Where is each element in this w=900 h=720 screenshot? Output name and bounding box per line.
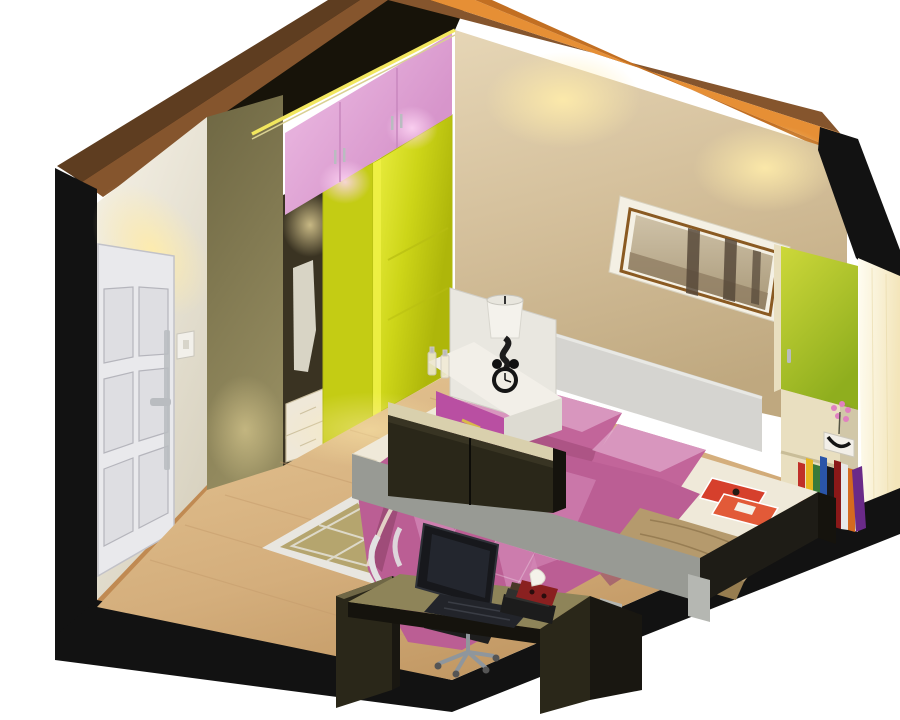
light-switch [177,331,194,359]
door-handle [150,398,171,406]
shelf-unit-green-door [781,246,858,410]
cabinet-light-glow [319,160,371,204]
light-panel [858,258,900,520]
cabinet-light-glow [386,106,438,150]
wardrobe-side-column [205,95,285,491]
exterior-wall-left-edge [55,168,97,657]
book [841,463,848,530]
wall-light-pool [485,52,641,148]
door-handle [787,349,791,363]
wall-light-pool [693,124,837,212]
bed-leg [688,574,710,622]
entry-door [98,244,174,576]
room-render: 3D isometric cutaway render of a small b… [0,0,900,720]
bed-footboard-side [818,492,836,544]
